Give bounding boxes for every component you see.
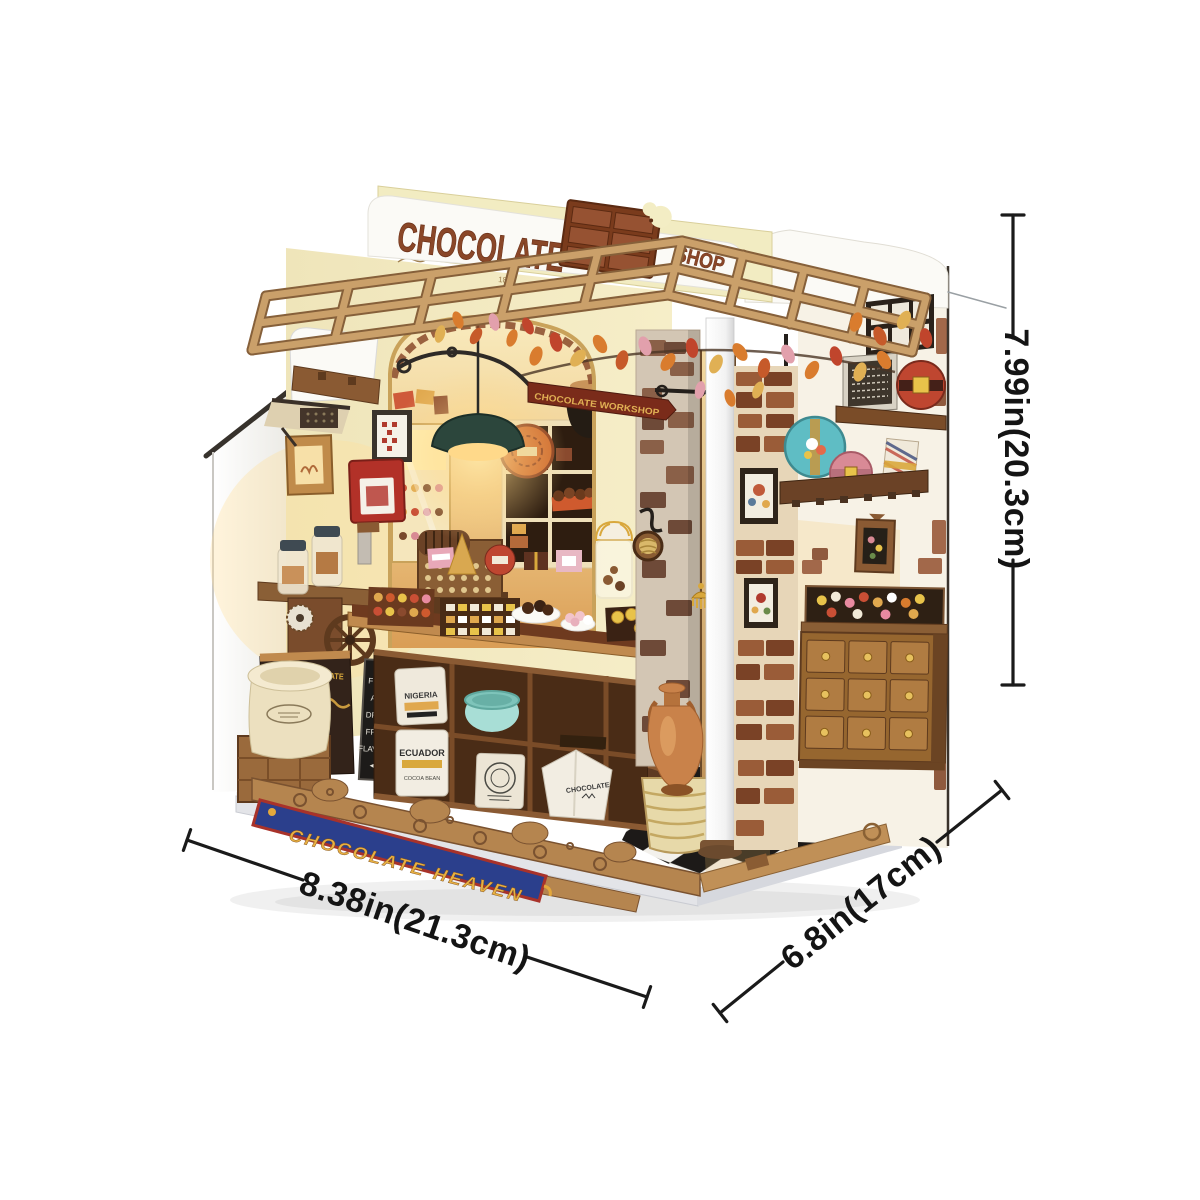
- cocoa-sack-nigeria: NIGERIA: [395, 667, 448, 726]
- glass-jar: [596, 522, 632, 598]
- sack-label: ECUADOR: [399, 748, 445, 758]
- teal-bowl: [465, 691, 519, 732]
- product-image: 1893: [0, 0, 1200, 1200]
- small-framed-picture: [855, 513, 895, 572]
- red-round-tin: [897, 361, 945, 409]
- red-vending-box: [349, 459, 405, 533]
- sack-label: COCOA BEAN: [404, 776, 440, 782]
- wall-tile-frame: [740, 468, 778, 524]
- shop-model-illustration: 1893: [0, 0, 1200, 1200]
- spice-jar: [278, 540, 308, 594]
- drawer-cabinet: [799, 586, 948, 771]
- wall-tile-frame: [744, 578, 778, 628]
- sack-label: NIGERIA: [404, 690, 438, 701]
- spice-jar: [312, 526, 342, 586]
- leader-line: [948, 292, 1006, 308]
- stamped-sack: [475, 753, 525, 809]
- cross-stitch-frame: [372, 410, 412, 462]
- dimension-label-height: 7.99in(20.3cm): [999, 328, 1033, 569]
- cocoa-sack-ecuador: ECUADOR COCOA BEAN: [396, 730, 448, 796]
